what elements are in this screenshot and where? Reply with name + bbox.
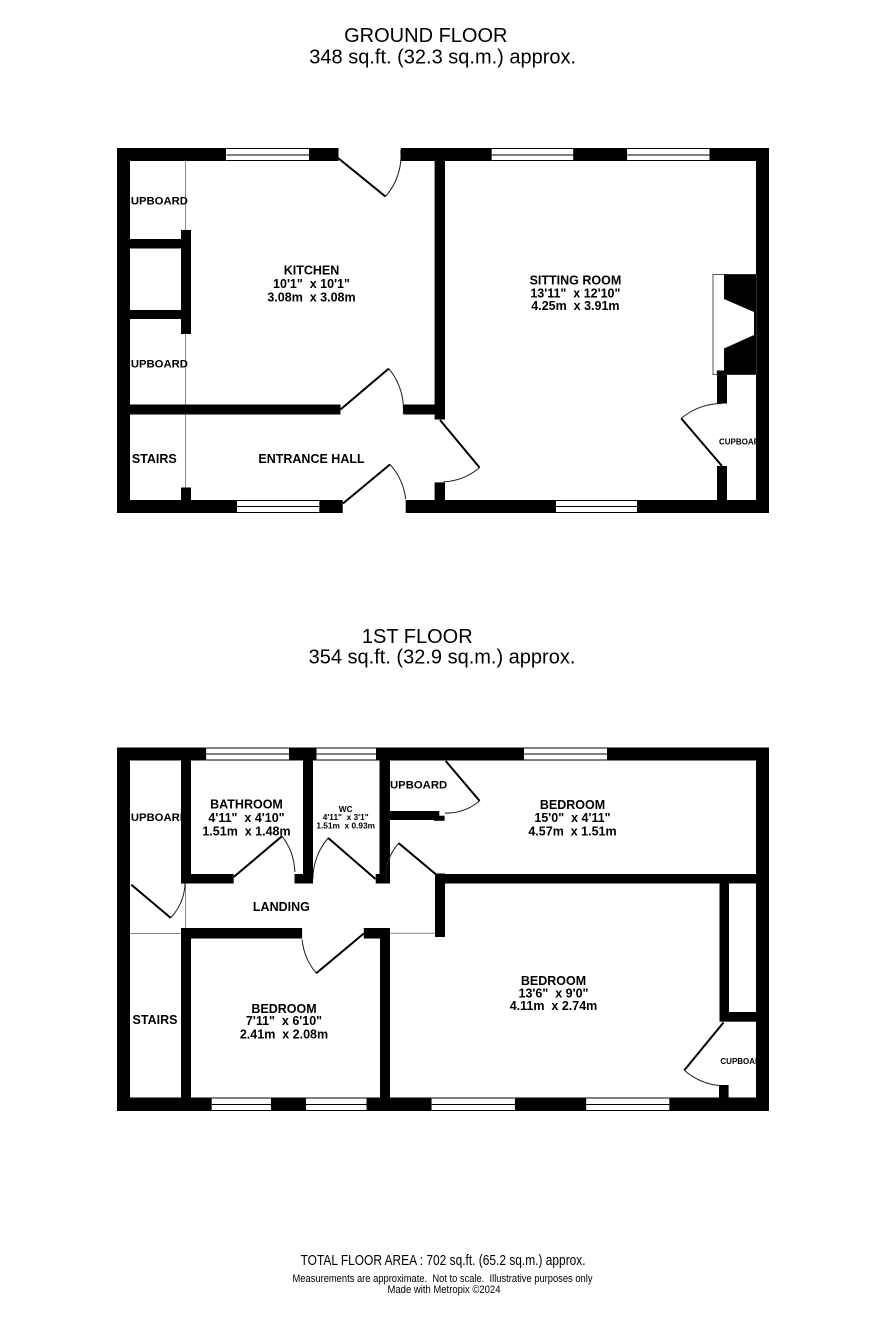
svg-text:GROUND FLOOR: GROUND FLOOR [344,25,507,47]
svg-text:KITCHEN: KITCHEN [284,264,340,278]
svg-text:BEDROOM: BEDROOM [540,798,605,812]
svg-text:4.11m x 2.74m: 4.11m x 2.74m [510,999,598,1013]
svg-text:7'11" x 6'10": 7'11" x 6'10" [246,1014,322,1028]
svg-text:4.57m x 1.51m: 4.57m x 1.51m [528,824,616,838]
svg-text:CUPBOARD: CUPBOARD [123,812,188,824]
svg-text:348 sq.ft. (32.3 sq.m.) approx: 348 sq.ft. (32.3 sq.m.) approx. [309,46,576,68]
svg-text:BATHROOM: BATHROOM [210,798,283,812]
svg-text:10'1" x 10'1": 10'1" x 10'1" [273,277,350,291]
svg-text:3.08m x 3.08m: 3.08m x 3.08m [267,291,355,305]
svg-text:LANDING: LANDING [253,900,310,914]
svg-text:Made with Metropix ©2024: Made with Metropix ©2024 [388,1284,501,1296]
svg-text:1.51m x 1.48m: 1.51m x 1.48m [202,825,290,839]
svg-text:CUPBOARD: CUPBOARD [123,195,188,207]
svg-text:TOTAL FLOOR AREA : 702 sq.ft.: TOTAL FLOOR AREA : 702 sq.ft. (65.2 sq.m… [301,1253,586,1269]
svg-text:CUPBOARD: CUPBOARD [123,358,188,370]
svg-text:4'11" x 4'10": 4'11" x 4'10" [208,811,284,825]
svg-text:354 sq.ft. (32.9 sq.m.) approx: 354 sq.ft. (32.9 sq.m.) approx. [309,647,576,669]
svg-text:4.25m x 3.91m: 4.25m x 3.91m [531,299,619,313]
svg-text:CUPBOARD: CUPBOARD [382,780,447,792]
svg-text:STAIRS: STAIRS [132,452,177,466]
svg-text:1ST FLOOR: 1ST FLOOR [362,626,473,648]
svg-text:ENTRANCE HALL: ENTRANCE HALL [258,452,365,466]
svg-text:15'0" x 4'11": 15'0" x 4'11" [534,811,610,825]
svg-text:2.41m x 2.08m: 2.41m x 2.08m [240,1028,328,1042]
svg-text:1.51m x 0.93m: 1.51m x 0.93m [316,820,375,830]
svg-text:STAIRS: STAIRS [133,1013,178,1027]
